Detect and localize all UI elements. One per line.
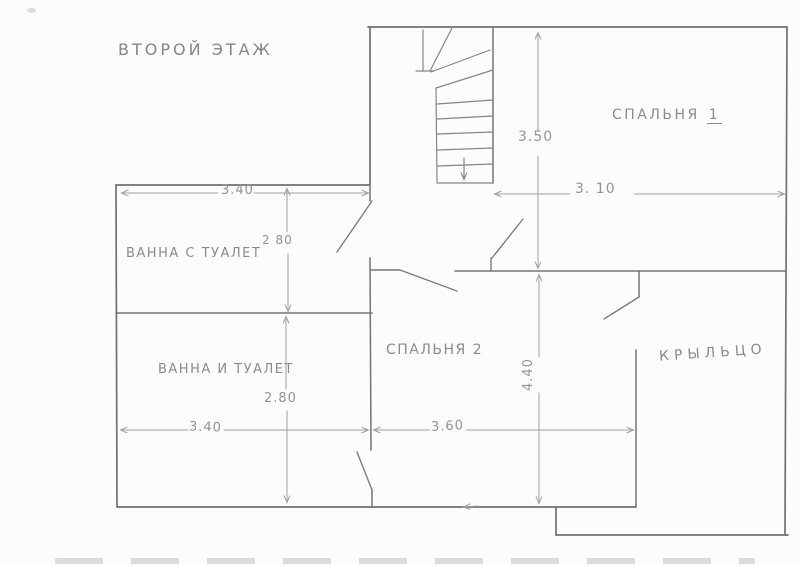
dim-label-bath-bottom-depth: 2.80 — [264, 391, 297, 406]
scan-edge-shadow — [55, 558, 755, 564]
room-label-bath-top: ВАННА С ТУАЛЕТ — [126, 246, 261, 261]
dimension-lines — [121, 33, 784, 507]
room-label-bedroom1: СПАЛЬНЯ1 — [612, 107, 722, 123]
door-leaf-bedroom2 — [400, 270, 457, 291]
door-leaf-bath-top — [337, 201, 372, 252]
dim-label-bath-bottom-width: 3.40 — [189, 419, 222, 435]
dim-label-bath-top-width: 3.40 — [221, 183, 254, 198]
room-label-bedroom1-text: СПАЛЬНЯ — [612, 107, 700, 123]
dim-label-bedroom1-width: 3. 10 — [575, 181, 616, 197]
dim-bath-top-depth — [287, 189, 288, 311]
door-leaf-bath-bottom — [357, 452, 372, 490]
door-leaf-porch — [604, 297, 639, 319]
dim-label-bedroom2-width: 3.60 — [431, 418, 465, 435]
dim-label-bedroom2-depth: 4.40 — [521, 358, 536, 391]
door-leaf-bedroom1 — [492, 219, 523, 258]
dim-label-bedroom1-depth: 3.50 — [518, 129, 553, 145]
room-number-bedroom1: 1 — [707, 107, 722, 124]
dim-bath-bottom-depth — [286, 317, 287, 502]
page-title: ВТОРОЙ ЭТАЖ — [118, 40, 273, 59]
staircase — [416, 28, 493, 183]
floorplan-drawing — [0, 0, 800, 566]
room-label-bath-bottom: ВАННА И ТУАЛЕТ — [158, 362, 294, 377]
floorplan-scan: ВТОРОЙ ЭТАЖ СПАЛЬНЯ1 3.50 3. 10 3.40 2 8… — [0, 0, 800, 566]
room-label-bedroom2: СПАЛЬНЯ 2 — [386, 342, 483, 358]
dim-label-bath-top-depth: 2 80 — [262, 233, 293, 247]
